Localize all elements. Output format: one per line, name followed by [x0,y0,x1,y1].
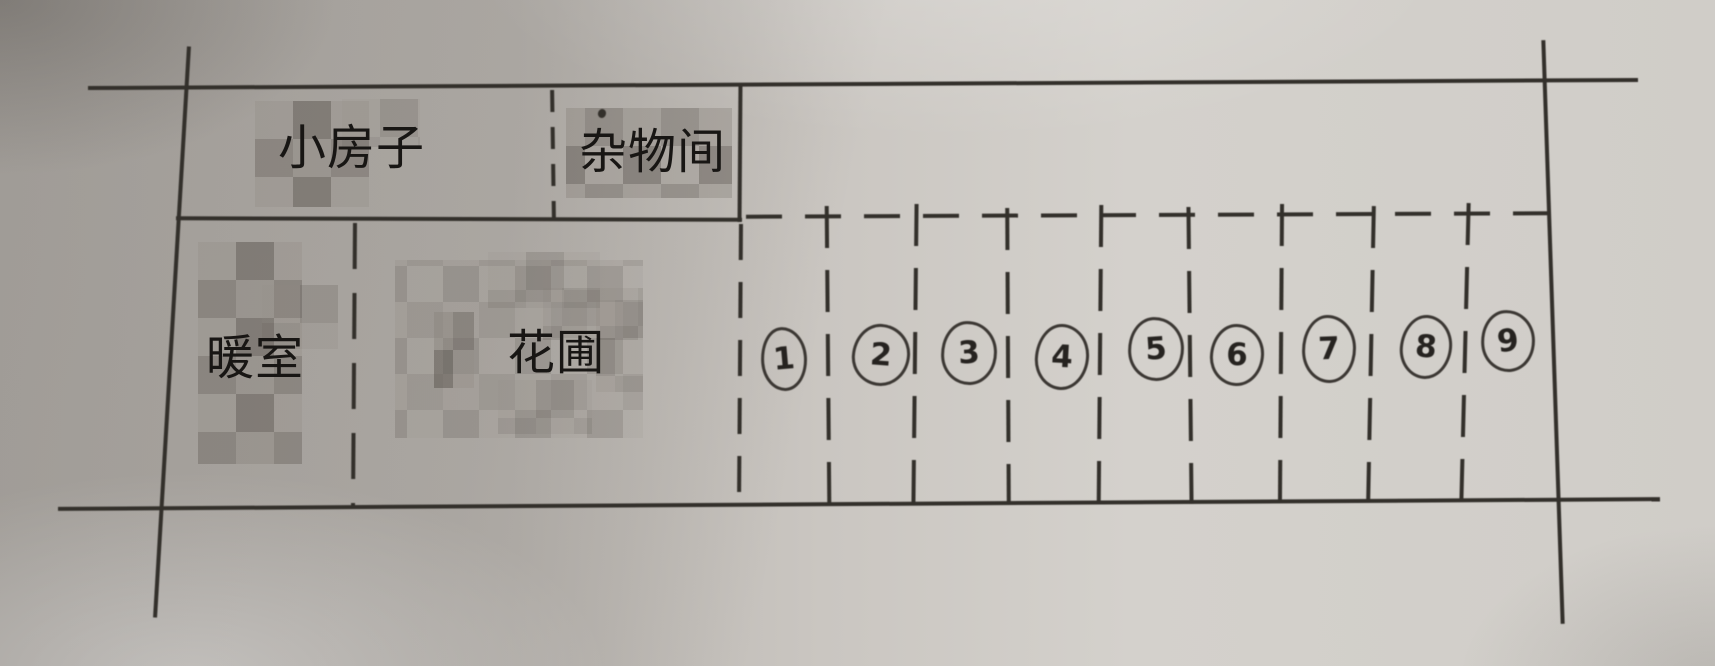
plot-number: 7 [1318,331,1341,368]
plot-divider-line [1278,204,1284,502]
small-house-storage-divider-line [550,90,556,218]
plot-divider-line [825,206,832,504]
ink-dot [597,108,608,119]
plot-divider-line [911,204,918,504]
plot-number-circle: 2 [850,322,912,388]
room-label-flower-bed: 花圃 [507,330,605,378]
plot-number: 4 [1050,338,1073,375]
room-label-warm-room: 暖室 [206,335,304,383]
plot-number: 9 [1495,322,1520,360]
plot-divider-line [1186,207,1193,504]
plot-divider-line [1366,206,1376,502]
plot-number-circle: 3 [939,320,998,387]
plot-number: 5 [1144,330,1168,367]
plot-number-circle: 6 [1209,323,1265,387]
plot-number: 6 [1226,337,1249,374]
plot-divider-line [1005,208,1011,504]
columns-top-dashed-line [746,211,1548,218]
plot-number: 3 [957,334,980,371]
storage-room-right-wall-line [738,84,743,222]
top-band-divider-line [176,216,742,221]
plot-divider-line [737,224,743,504]
right-border-line [1541,40,1564,624]
plot-number-circle: 4 [1033,323,1090,392]
bottom-border-line [58,497,1660,511]
plot-number-circle: 8 [1397,313,1454,381]
plot-number: 2 [869,336,893,373]
paper-photo: 1 2 3 4 5 6 7 8 9 小房子 杂物间 暖室 花圃 [0,0,1715,666]
left-border-line [153,46,191,617]
room-label-small-house: 小房子 [278,125,425,173]
plot-number-circle: 9 [1478,307,1538,374]
plot-number: 8 [1414,328,1439,366]
warm-room-flower-bed-divider-line [351,223,357,507]
room-label-storage-room: 杂物间 [579,129,726,177]
plot-number-circle: 5 [1126,315,1186,383]
top-border-line [88,78,1638,90]
plot-number-circle: 7 [1301,314,1357,384]
plot-number-circle: 1 [758,325,809,393]
plot-divider-line [1097,205,1104,504]
plot-divider-line [1459,203,1470,503]
plot-number: 1 [772,340,797,378]
